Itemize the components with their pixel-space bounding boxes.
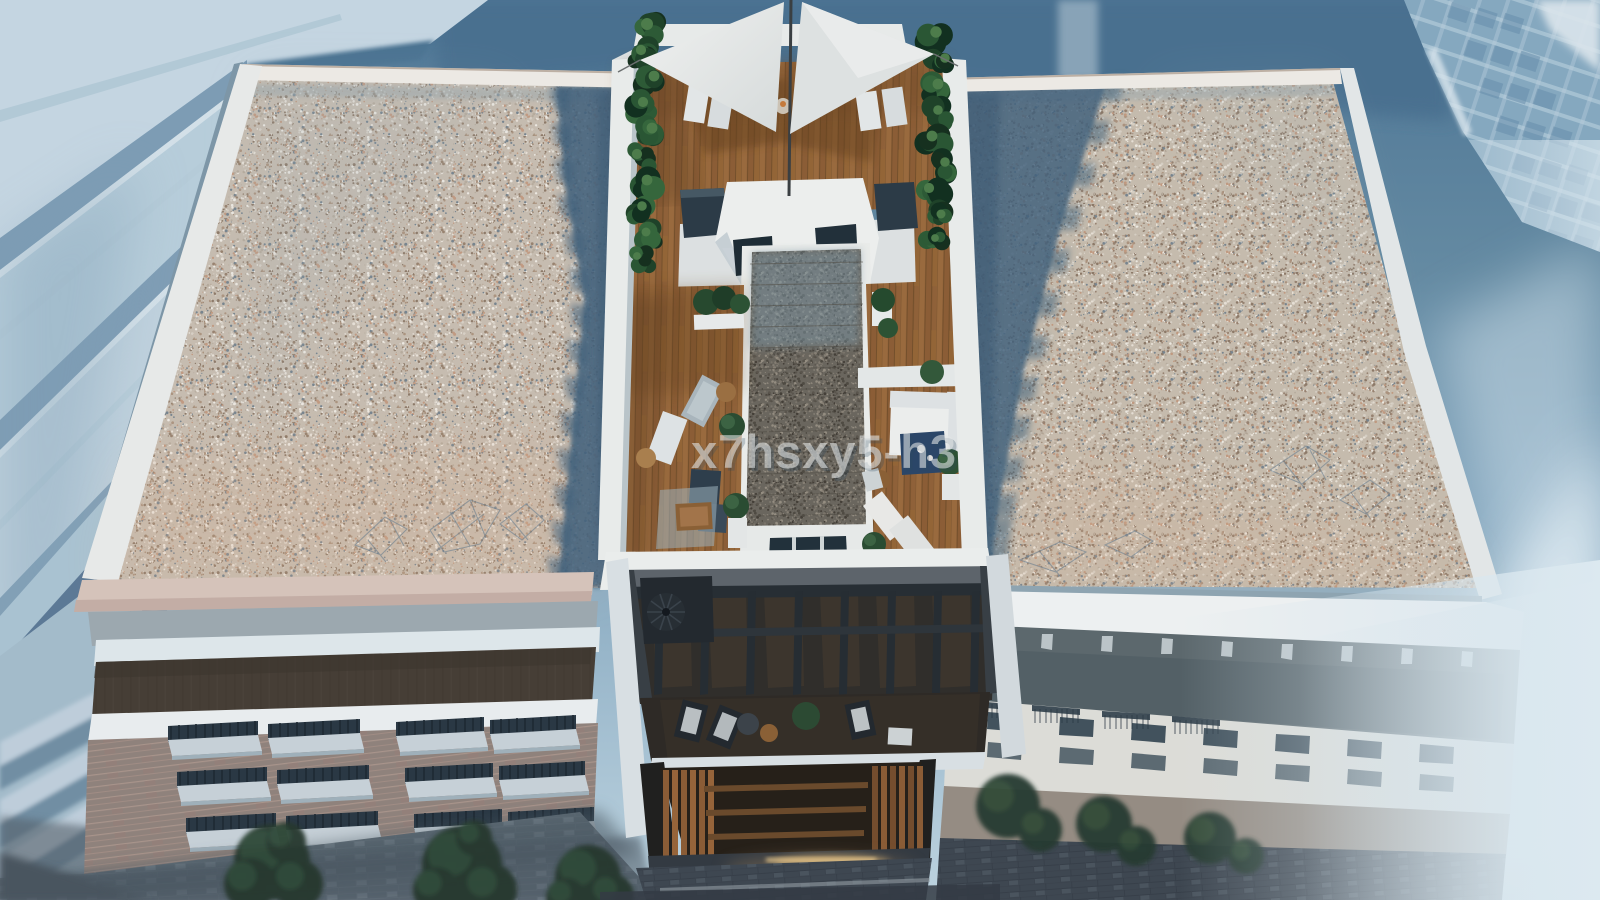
svg-text:x7hsxy5-h3: x7hsxy5-h3 [691, 425, 957, 478]
